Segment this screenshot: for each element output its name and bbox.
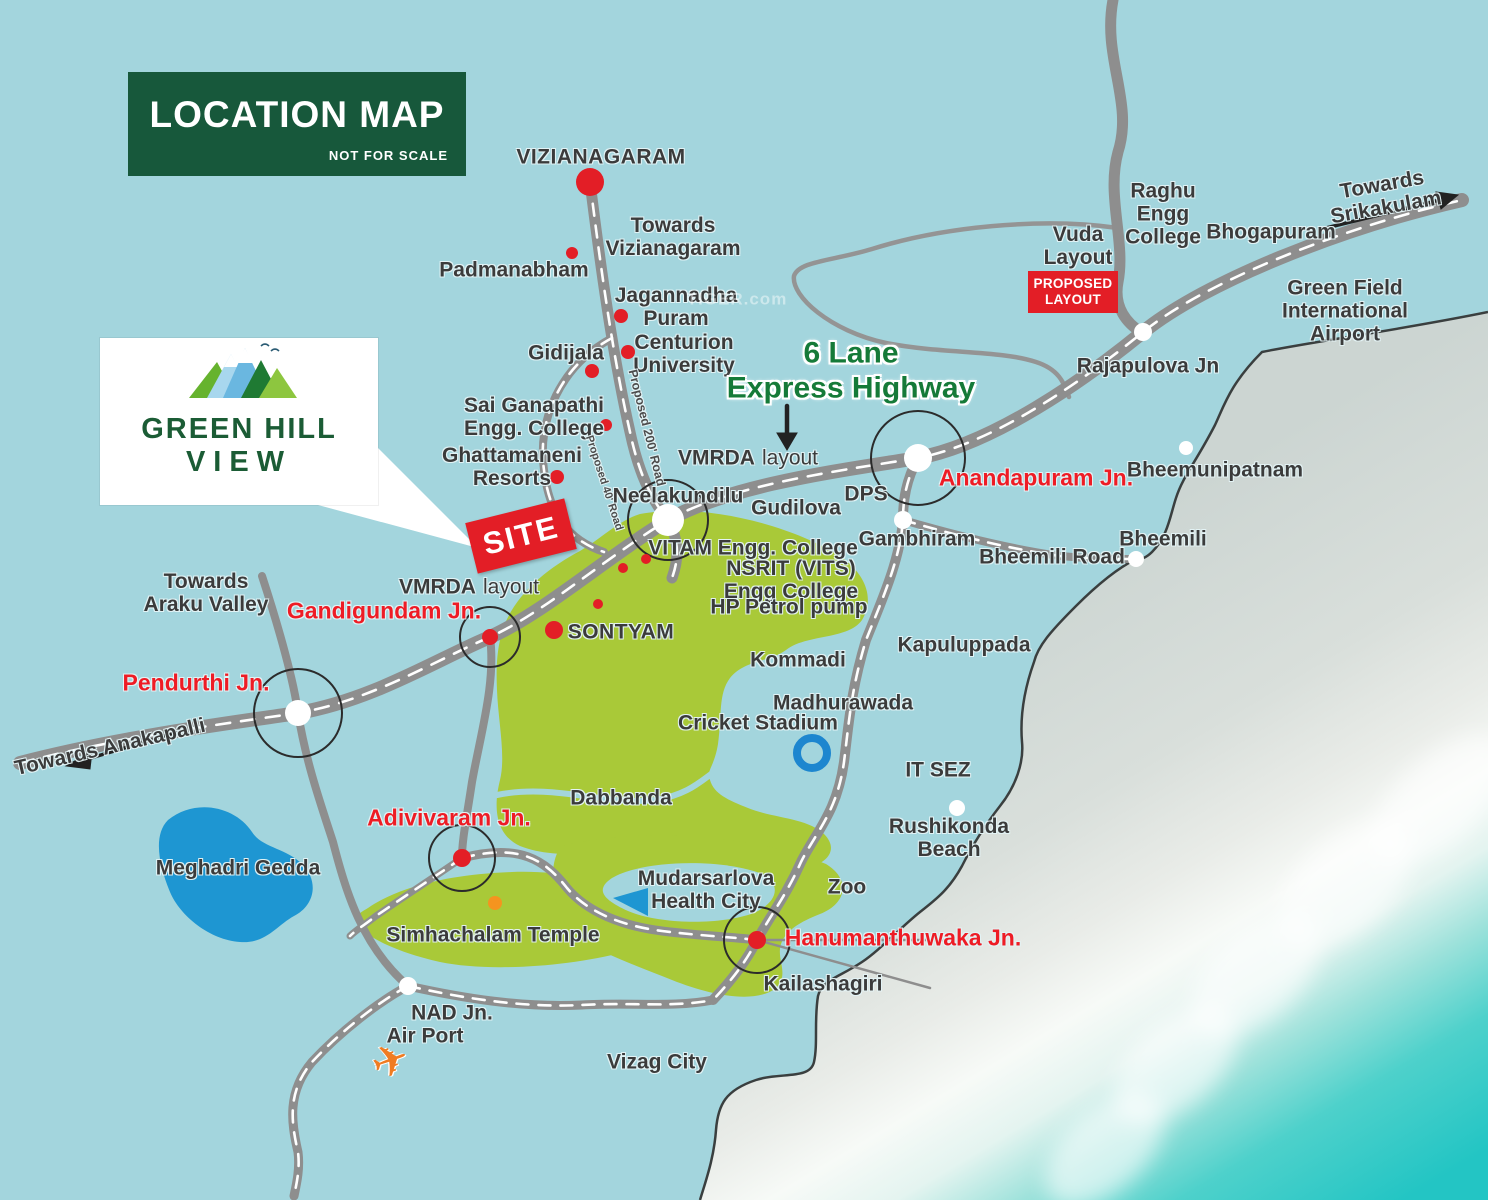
label-anandapuram-jn: Anandapuram Jn.: [939, 465, 1133, 490]
label-towards-araku: Towards Araku Valley: [144, 570, 269, 616]
dot-bheemili: [1128, 551, 1144, 567]
label-zoo: Zoo: [828, 875, 866, 898]
dot-adivivaram: [453, 849, 471, 867]
label-towards-vizianagaram-nw: Towards Vizianagaram: [605, 214, 740, 260]
logo-name-line1: GREEN HILL: [100, 413, 378, 446]
label-dabbanda: Dabbanda: [570, 786, 672, 809]
vmrda-bold: VMRDA: [678, 446, 755, 469]
dot-hp-petrol: [593, 599, 603, 609]
label-padmanabham: Padmanabham: [439, 258, 588, 281]
logo-name-line2: VIEW: [100, 446, 378, 479]
label-pendurthi-jn: Pendurthi Jn.: [123, 670, 270, 695]
label-green-field-airport: Green Field International Airport: [1282, 276, 1408, 345]
label-vmrda-layout-right: VMRDAlayout: [678, 446, 818, 469]
vmrda-rest: layout: [762, 446, 818, 469]
dot-pendurthi: [285, 700, 311, 726]
label-bhogapuram: Bhogapuram: [1206, 220, 1336, 243]
label-dps: DPS: [844, 482, 887, 505]
dot-anandapuram: [904, 444, 932, 472]
label-sai-ganapathi: Sai Ganapathi Engg. College: [464, 394, 604, 440]
label-neelakundilu: Neelakundilu: [613, 484, 744, 507]
vmrda-bold: VMRDA: [399, 575, 476, 598]
label-simhachalam-temple: Simhachalam Temple: [386, 923, 599, 946]
label-gandigundam-jn: Gandigundam Jn.: [287, 598, 481, 623]
label-adivivaram-jn: Adivivaram Jn.: [367, 805, 531, 830]
label-vizag-city: Vizag City: [607, 1050, 707, 1073]
label-meghadri-gedda: Meghadri Gedda: [156, 856, 321, 879]
label-gambhiram: Gambhiram: [859, 527, 976, 550]
label-mudarsarlova: Mudarsarlova Health City: [638, 867, 775, 913]
dot-gidijala: [585, 364, 599, 378]
label-vuda-layout: Vuda Layout: [1044, 223, 1113, 269]
label-kapuluppada: Kapuluppada: [897, 633, 1030, 656]
label-centurion-university: Centurion University: [633, 331, 735, 377]
logo-box: GREEN HILL VIEW: [100, 338, 378, 505]
label-raghu-engg: Raghu Engg College: [1125, 179, 1201, 248]
label-vmrda-layout-left: VMRDAlayout: [399, 575, 539, 598]
dot-hanumanthuwaka: [748, 931, 766, 949]
label-vizianagaram: VIZIANAGARAM: [516, 145, 685, 168]
label-bheemunipatnam: Bheemunipatnam: [1127, 458, 1303, 481]
dot-vizianagaram: [576, 168, 604, 196]
road-nad-southwest: [293, 986, 408, 1196]
location-map: LOCATION MAP NOT FOR SCALE GREEN HILL VI…: [0, 0, 1488, 1200]
label-hanumanthuwaka-jn: Hanumanthuwaka Jn.: [785, 925, 1021, 950]
dot-gambhiram: [894, 511, 912, 529]
dot-simhachalam-temple: [488, 896, 502, 910]
label-kommadi: Kommadi: [750, 648, 846, 671]
dot-bheemunipatnam: [1179, 441, 1193, 455]
sea-surface: [700, 312, 1488, 1200]
label-ghattamaneni: Ghattamaneni Resorts: [442, 444, 582, 490]
watermark: TIGER.com: [687, 291, 788, 310]
dot-gandigundam: [482, 629, 498, 645]
proposed-layout-label: PROPOSED LAYOUT: [1034, 276, 1113, 308]
dot-nad: [399, 977, 417, 995]
mountains-logo-icon: [100, 338, 378, 404]
header-subtitle: NOT FOR SCALE: [329, 148, 448, 163]
cricket-stadium-ring: [797, 738, 827, 768]
label-hp-petrol: HP Petrol pump: [710, 595, 867, 618]
page-title: LOCATION MAP: [128, 94, 466, 136]
dot-rushikonda: [949, 800, 965, 816]
label-rushikonda-beach: Rushikonda Beach: [889, 815, 1009, 861]
label-rajapulova-jn: Rajapulova Jn: [1077, 354, 1219, 377]
header-box: LOCATION MAP NOT FOR SCALE: [128, 72, 466, 176]
label-cricket-stadium: Cricket Stadium: [678, 711, 838, 734]
label-it-sez: IT SEZ: [905, 758, 970, 781]
label-gudilova: Gudilova: [751, 496, 841, 519]
label-bheemili: Bheemili: [1119, 527, 1207, 550]
proposed-layout-box: PROPOSED LAYOUT: [1028, 271, 1118, 313]
dot-nsrit: [618, 563, 628, 573]
site-label: SITE: [479, 509, 562, 563]
label-gidijala: Gidijala: [528, 341, 604, 364]
dot-neelakundilu: [652, 504, 684, 536]
label-six-lane-express-highway: 6 Lane Express Highway: [727, 337, 975, 406]
label-sontyam: SONTYAM: [568, 620, 675, 643]
dot-sontyam: [545, 621, 563, 639]
label-bheemili-road: Bheemili Road: [979, 545, 1125, 568]
dot-rajapulova: [1134, 323, 1152, 341]
label-nad-jn: NAD Jn.: [411, 1001, 493, 1024]
vmrda-rest: layout: [483, 575, 539, 598]
sea-and-beach: [700, 312, 1488, 1200]
dot-padmanabham: [566, 247, 578, 259]
label-kailashagiri: Kailashagiri: [763, 972, 882, 995]
